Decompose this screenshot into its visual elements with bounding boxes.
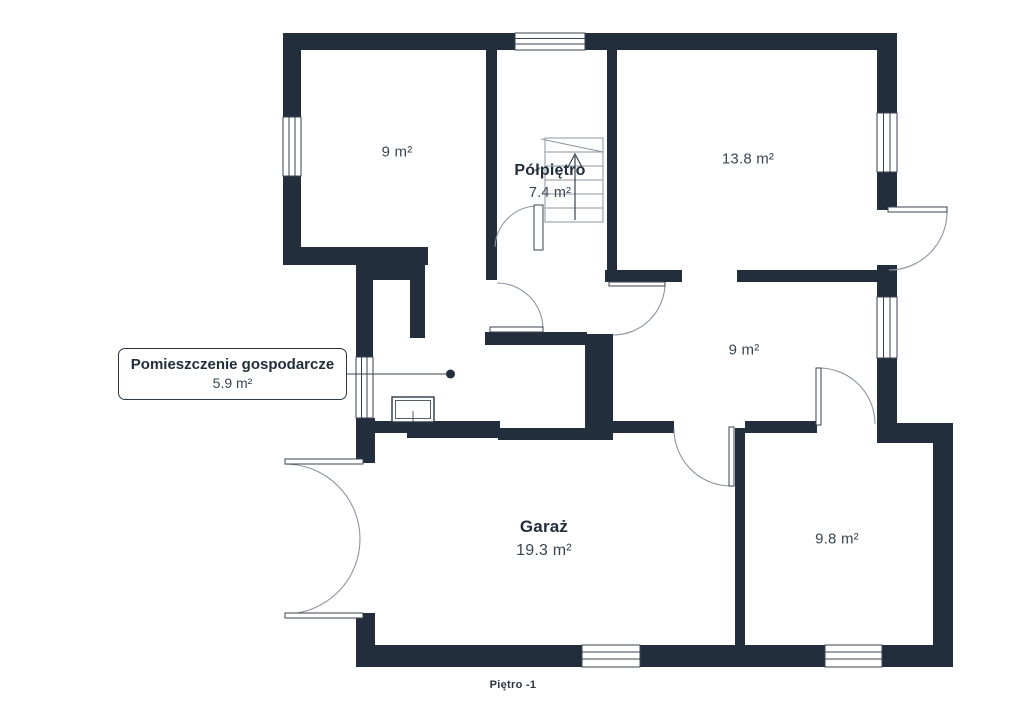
walls-layer	[283, 33, 953, 667]
stairs-symbol	[541, 138, 603, 222]
window	[877, 113, 897, 172]
door-leaf	[285, 613, 363, 618]
door-leaf	[490, 327, 543, 332]
room-label-polpietro-area: 7.4 m²	[529, 185, 571, 201]
door-arc	[819, 368, 875, 424]
room-label-polpietro-name: Półpiętro	[514, 162, 585, 180]
window	[356, 357, 373, 418]
door-arc	[613, 284, 665, 335]
utility-room-callout-title: Pomieszczenie gospodarcze	[131, 356, 334, 375]
window	[825, 645, 882, 667]
window	[582, 645, 640, 667]
floor-plan-page: 9 m² Półpiętro 7.4 m² 13.8 m² 9 m² Garaż…	[0, 0, 1024, 724]
room-label-top-right-area: 13.8 m²	[722, 151, 774, 168]
door-arc	[285, 464, 360, 539]
door-leaf	[285, 459, 363, 464]
room-label-bottom-right-area: 9.8 m²	[815, 531, 859, 548]
door-arc	[285, 539, 360, 614]
room-label-top-left-area: 9 m²	[382, 144, 413, 161]
room-label-garage-name: Garaż	[520, 517, 568, 537]
door-arc	[674, 429, 731, 486]
door-arc	[497, 283, 543, 329]
floor-name-label: Piętro -1	[490, 679, 537, 691]
room-label-middle-right-area: 9 m²	[729, 342, 760, 359]
utility-room-callout-area: 5.9 m²	[213, 375, 253, 393]
door-leaf	[888, 207, 947, 212]
door-leaf	[534, 205, 543, 250]
fixture-boiler	[392, 397, 434, 422]
utility-room-callout: Pomieszczenie gospodarcze 5.9 m²	[118, 348, 347, 400]
door-arc	[889, 212, 947, 270]
window	[877, 297, 897, 358]
window	[515, 33, 585, 50]
window	[283, 117, 301, 176]
door-leaf	[729, 427, 734, 486]
door-arc	[495, 206, 537, 247]
door-leaf	[816, 368, 821, 425]
callout-anchor-dot	[446, 370, 455, 379]
room-label-garage-area: 19.3 m²	[516, 542, 572, 560]
door-leaf	[609, 282, 665, 286]
